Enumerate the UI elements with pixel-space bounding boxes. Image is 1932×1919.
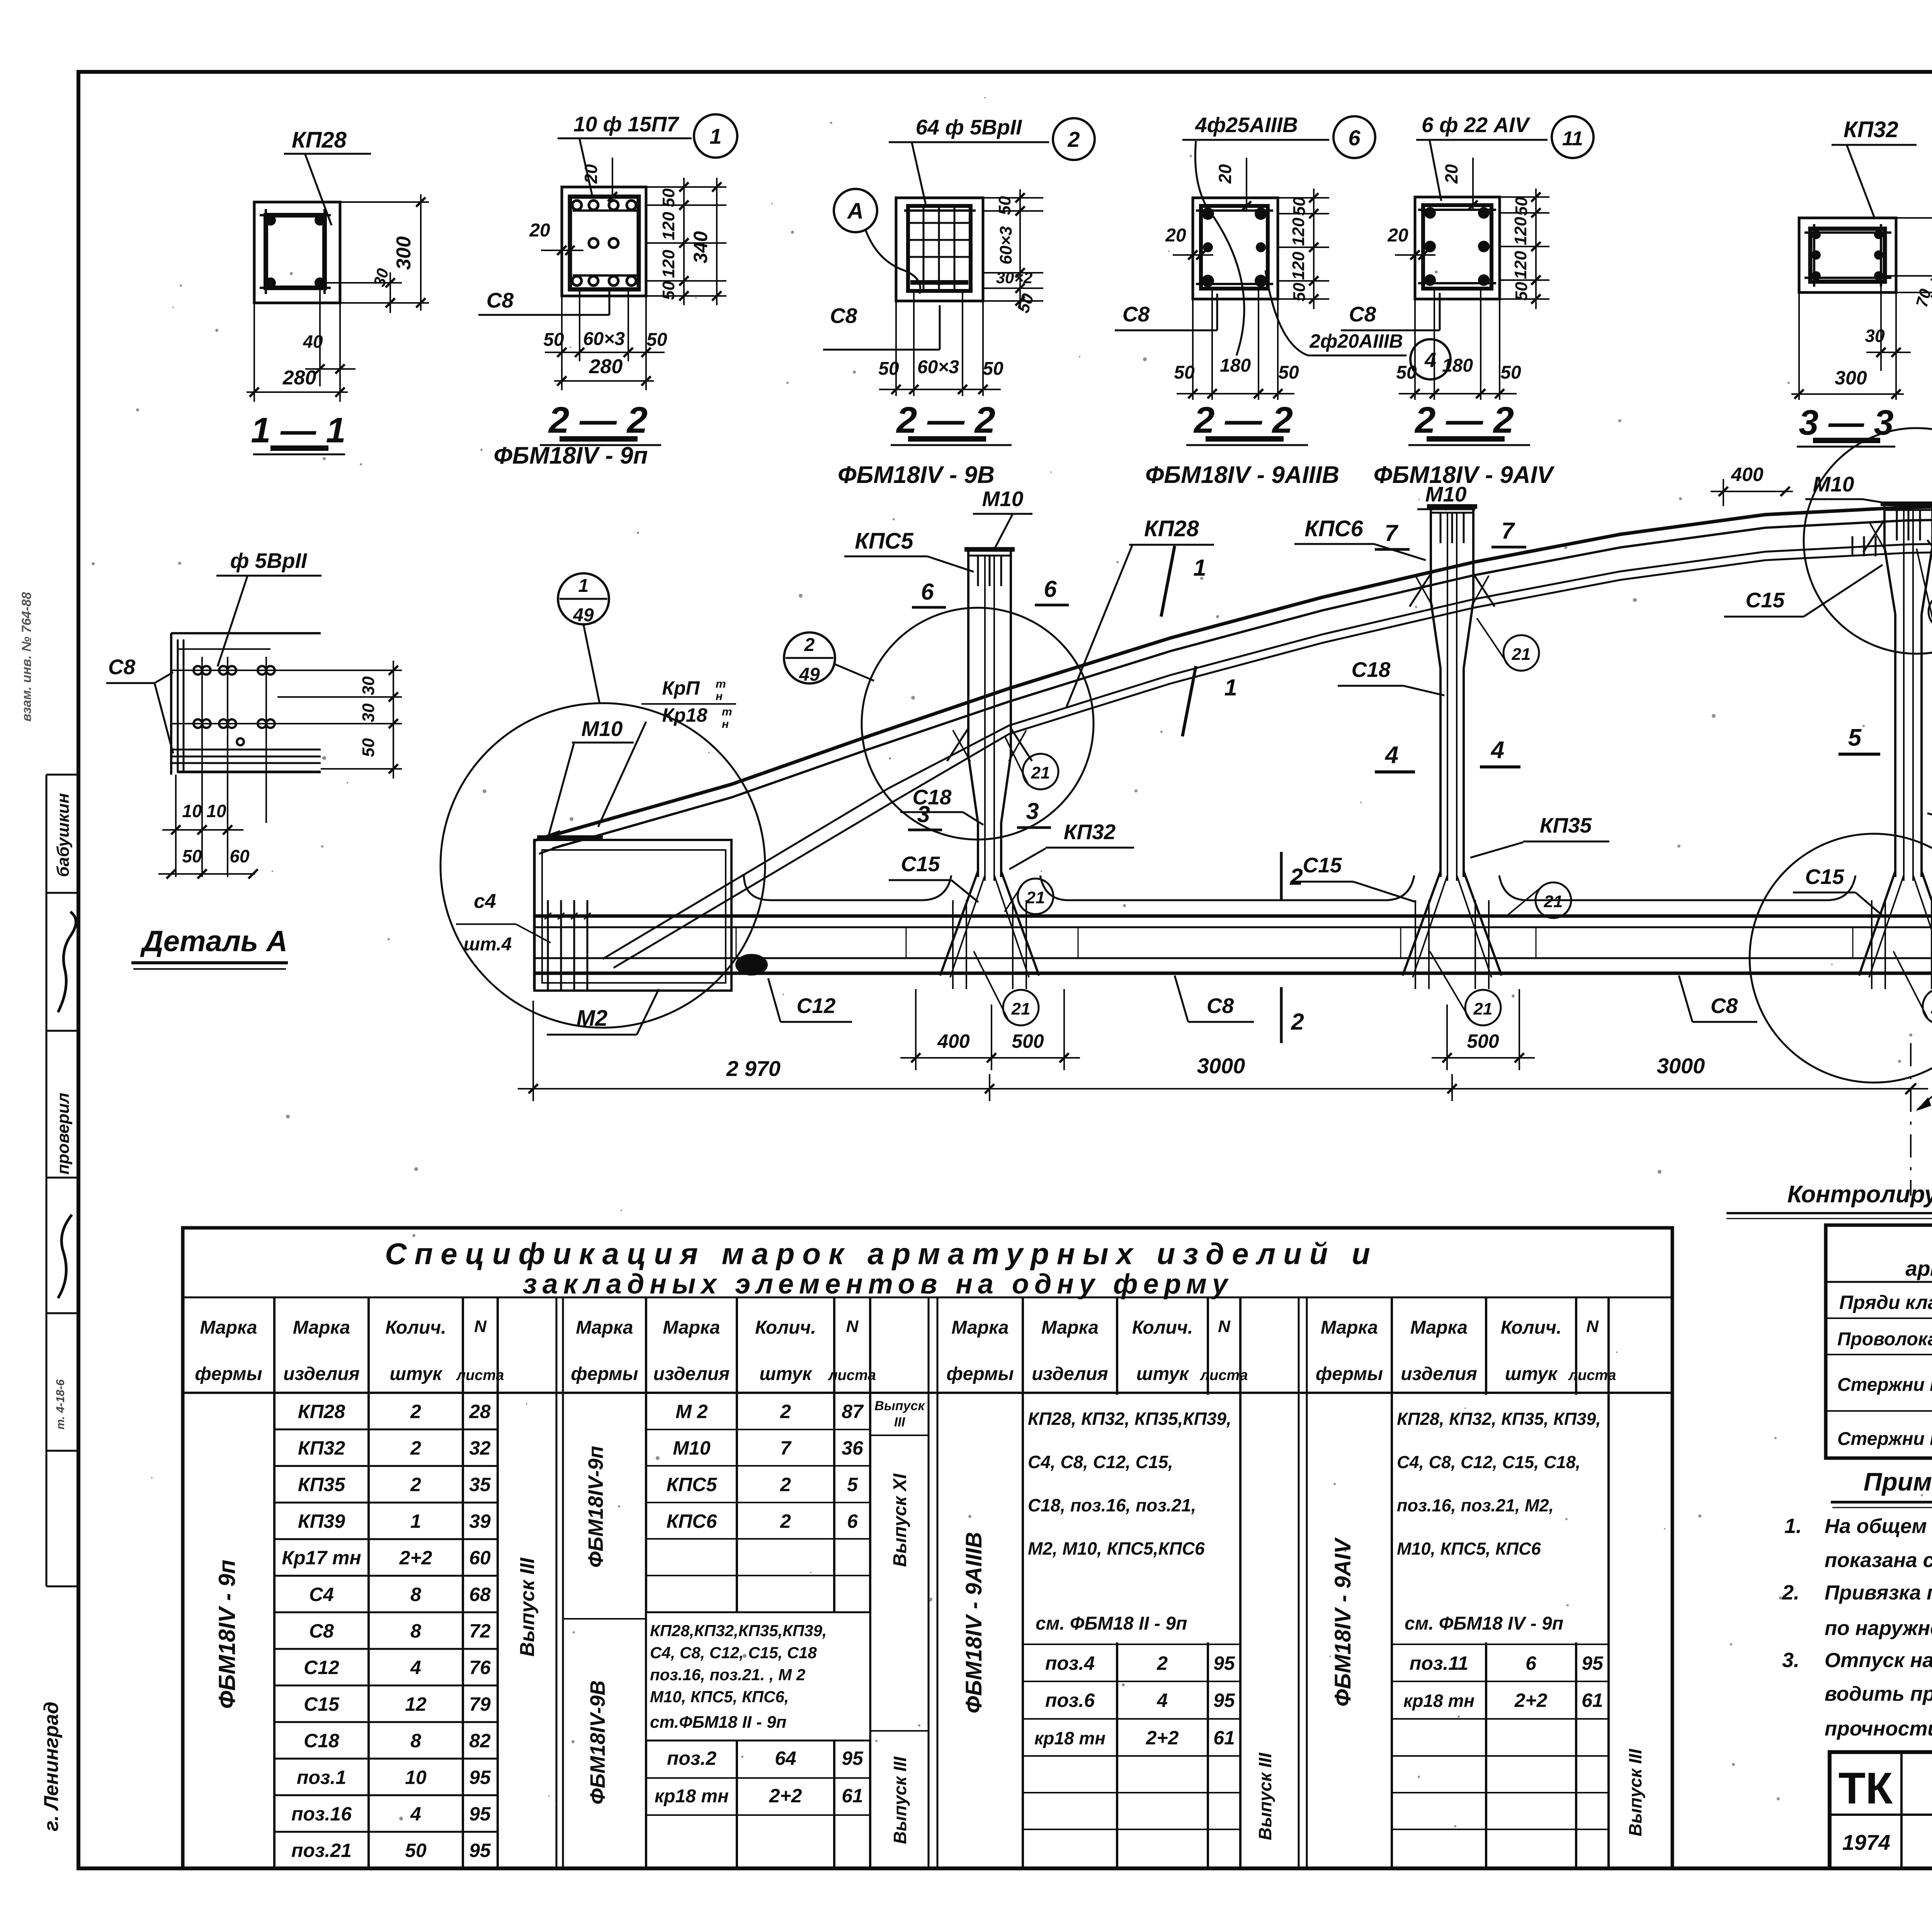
svg-text:1: 1 [709, 124, 721, 148]
svg-text:прочности не менее 280кг/см: прочности не менее 280кг/см². [1825, 1717, 1932, 1740]
svg-text:280: 280 [282, 367, 316, 389]
svg-text:кр18 тн: кр18 тн [1403, 1691, 1475, 1711]
svg-text:2 — 2: 2 — 2 [1414, 399, 1514, 441]
svg-text:64: 64 [775, 1747, 796, 1769]
svg-text:2: 2 [780, 1474, 791, 1496]
svg-text:Марка: Марка [951, 1317, 1009, 1338]
svg-text:500: 500 [1012, 1030, 1044, 1052]
svg-text:изделия: изделия [653, 1364, 730, 1384]
svg-text:Марка: Марка [1410, 1317, 1468, 1338]
svg-text:4: 4 [1156, 1690, 1168, 1711]
svg-text:68: 68 [469, 1584, 491, 1605]
svg-text:60: 60 [230, 846, 250, 866]
svg-text:7: 7 [780, 1437, 792, 1459]
svg-text:6: 6 [847, 1510, 858, 1532]
svg-text:Марка: Марка [663, 1317, 720, 1338]
svg-text:С15: С15 [1805, 865, 1845, 889]
svg-text:Выпуск III: Выпуск III [1255, 1752, 1275, 1840]
svg-text:72: 72 [469, 1620, 491, 1642]
svg-text:М10, КПС5, КПС6,: М10, КПС5, КПС6, [650, 1688, 789, 1706]
svg-text:С8: С8 [1122, 302, 1150, 326]
svg-text:КП32: КП32 [1064, 820, 1116, 844]
svg-text:Стержни класса А-IV: Стержни класса А-IV [1837, 1429, 1932, 1449]
svg-text:н: н [722, 718, 729, 731]
svg-text:21: 21 [1026, 888, 1045, 907]
svg-text:2+2: 2+2 [399, 1547, 432, 1569]
svg-text:т. 4-18-6: т. 4-18-6 [54, 1379, 67, 1429]
svg-text:2.: 2. [1782, 1581, 1799, 1604]
svg-text:300: 300 [393, 236, 415, 270]
svg-text:95: 95 [469, 1803, 491, 1825]
svg-text:400: 400 [1731, 464, 1764, 485]
svg-text:шт.4: шт.4 [464, 934, 512, 955]
svg-text:С8: С8 [1349, 302, 1376, 326]
svg-text:32: 32 [469, 1437, 491, 1459]
svg-text:50: 50 [659, 281, 678, 300]
svg-text:Марка: Марка [200, 1317, 257, 1338]
svg-text:Кр17 тн: Кр17 тн [282, 1547, 361, 1569]
svg-text:Выпуск III: Выпуск III [890, 1756, 910, 1844]
svg-text:120: 120 [1289, 218, 1308, 246]
svg-text:поз.11: поз.11 [1410, 1652, 1468, 1674]
svg-text:21: 21 [1031, 763, 1050, 782]
svg-text:82: 82 [469, 1730, 491, 1752]
svg-text:С4, С8, С12, С15, С18: С4, С8, С12, С15, С18 [650, 1644, 817, 1662]
svg-text:2: 2 [804, 635, 815, 655]
svg-text:28: 28 [469, 1401, 491, 1422]
svg-text:Деталь А: Деталь А [140, 925, 287, 958]
svg-text:50: 50 [1174, 362, 1195, 383]
svg-text:61: 61 [1582, 1690, 1603, 1711]
svg-text:6: 6 [1348, 126, 1361, 150]
svg-text:20: 20 [1387, 225, 1408, 246]
svg-text:см. ФБМ18 II - 9п: см. ФБМ18 II - 9п [1036, 1613, 1187, 1634]
svg-text:С8: С8 [108, 655, 136, 679]
svg-text:61: 61 [1213, 1727, 1235, 1749]
svg-text:КП32: КП32 [298, 1437, 345, 1459]
svg-text:7: 7 [1384, 520, 1398, 546]
svg-text:ФБМ18IV - 9п: ФБМ18IV - 9п [494, 442, 648, 469]
svg-text:по наружному размеру рабочей а: по наружному размеру рабочей арматуры ка… [1825, 1617, 1932, 1640]
svg-text:50: 50 [983, 359, 1003, 379]
svg-text:ТК: ТК [1838, 1764, 1893, 1813]
svg-text:С18: С18 [1352, 658, 1391, 682]
svg-text:40: 40 [303, 331, 323, 352]
svg-text:50: 50 [1500, 362, 1521, 383]
svg-text:С8: С8 [1711, 994, 1738, 1018]
svg-text:Стержни класса А-IIIВ: Стержни класса А-IIIВ [1837, 1375, 1932, 1395]
svg-text:N: N [1218, 1317, 1231, 1336]
svg-text:Выпуск XI: Выпуск XI [890, 1473, 910, 1567]
svg-text:49: 49 [573, 605, 594, 626]
svg-text:10: 10 [182, 801, 202, 821]
svg-text:8: 8 [410, 1730, 421, 1752]
svg-text:300: 300 [1835, 367, 1867, 389]
svg-text:1: 1 [1193, 555, 1206, 581]
svg-text:11: 11 [1562, 127, 1583, 150]
svg-text:С15: С15 [1746, 588, 1785, 612]
svg-text:2 — 2: 2 — 2 [548, 399, 648, 441]
svg-text:М 2: М 2 [675, 1401, 708, 1422]
svg-text:60: 60 [469, 1547, 491, 1569]
svg-text:С12: С12 [304, 1657, 339, 1678]
svg-text:т: т [716, 678, 726, 690]
svg-text:кр18 тн: кр18 тн [1034, 1728, 1105, 1748]
svg-text:2 — 2: 2 — 2 [896, 399, 995, 441]
svg-text:листа: листа [456, 1367, 504, 1384]
svg-text:20: 20 [1442, 164, 1461, 184]
svg-text:120: 120 [659, 250, 678, 278]
svg-text:см. ФБМ18 IV - 9п: см. ФБМ18 IV - 9п [1405, 1613, 1563, 1634]
svg-text:КПС6: КПС6 [1304, 516, 1363, 541]
svg-text:4: 4 [410, 1803, 421, 1825]
svg-text:КП35: КП35 [298, 1474, 346, 1496]
svg-text:10: 10 [206, 801, 226, 821]
svg-text:КП28, КП32, КП35, КП39,: КП28, КП32, КП35, КП39, [1397, 1409, 1601, 1429]
svg-text:2: 2 [1291, 1009, 1304, 1035]
svg-text:Марка: Марка [1321, 1317, 1378, 1338]
svg-text:С4: С4 [309, 1584, 334, 1605]
svg-text:95: 95 [469, 1766, 491, 1788]
svg-text:120: 120 [1511, 251, 1530, 279]
svg-text:Пряди класса П-7: Пряди класса П-7 [1839, 1292, 1932, 1313]
svg-text:3.: 3. [1782, 1649, 1799, 1672]
svg-text:С8: С8 [486, 288, 514, 312]
svg-text:армирования: армирования [1905, 1256, 1932, 1280]
svg-text:2+2: 2+2 [1146, 1727, 1179, 1749]
svg-text:Марка: Марка [576, 1317, 633, 1338]
svg-text:6: 6 [1526, 1652, 1537, 1674]
svg-text:180: 180 [1442, 355, 1473, 376]
svg-text:КП28: КП28 [298, 1401, 345, 1422]
svg-text:2: 2 [1156, 1652, 1168, 1674]
svg-text:т: т [722, 705, 732, 718]
svg-text:N: N [846, 1317, 859, 1336]
svg-text:КПС6: КПС6 [667, 1510, 718, 1532]
svg-text:н: н [716, 690, 723, 703]
svg-text:С15: С15 [901, 852, 940, 876]
svg-text:2: 2 [410, 1401, 421, 1422]
svg-text:30: 30 [1865, 326, 1885, 346]
svg-text:штук: штук [1136, 1364, 1190, 1384]
svg-text:Марка: Марка [1041, 1317, 1099, 1338]
svg-text:95: 95 [1582, 1652, 1604, 1674]
svg-text:поз.16, поз.21, М2,: поз.16, поз.21, М2, [1397, 1496, 1554, 1515]
svg-text:поз.1: поз.1 [297, 1766, 346, 1788]
svg-text:50: 50 [1512, 197, 1531, 216]
svg-text:поз.16: поз.16 [291, 1803, 352, 1825]
svg-text:штук: штук [1505, 1364, 1558, 1384]
svg-text:КПС5: КПС5 [667, 1474, 718, 1496]
svg-text:6: 6 [1044, 576, 1057, 602]
svg-text:2 — 2: 2 — 2 [1193, 399, 1293, 441]
svg-text:120: 120 [1289, 252, 1308, 280]
svg-text:фермы: фермы [571, 1364, 638, 1384]
svg-text:76: 76 [469, 1657, 491, 1678]
svg-text:С8: С8 [309, 1620, 334, 1642]
svg-text:4ф25АIIIВ: 4ф25АIIIВ [1195, 113, 1298, 137]
svg-text:60×3: 60×3 [583, 329, 625, 349]
svg-text:30×2: 30×2 [996, 269, 1033, 287]
svg-text:21: 21 [1011, 999, 1031, 1018]
svg-text:КП28, КП32, КП35,КП39,: КП28, КП32, КП35,КП39, [1028, 1409, 1231, 1429]
svg-text:180: 180 [1220, 355, 1251, 376]
svg-text:С4, С8, С12, С15, С18,: С4, С8, С12, С15, С18, [1397, 1452, 1580, 1472]
svg-text:поз.21: поз.21 [291, 1840, 352, 1861]
svg-text:95: 95 [1213, 1652, 1235, 1674]
svg-text:листа: листа [828, 1367, 876, 1384]
svg-text:20: 20 [1165, 225, 1186, 246]
svg-text:С12: С12 [797, 994, 836, 1018]
svg-text:N: N [474, 1317, 487, 1336]
svg-text:ФБМ18IV-9п: ФБМ18IV-9п [584, 1446, 607, 1567]
svg-text:Проволока класса Вр-II: Проволока класса Вр-II [1837, 1329, 1932, 1350]
svg-text:2: 2 [780, 1401, 791, 1422]
svg-text:КП28: КП28 [1144, 516, 1199, 541]
svg-text:3 — 3: 3 — 3 [1799, 403, 1893, 442]
svg-text:С4, С8, С12, С15,: С4, С8, С12, С15, [1028, 1452, 1173, 1472]
svg-text:Отпуск натяжения напрягаемой: Отпуск натяжения напрягаемой арматуры пр… [1825, 1649, 1932, 1672]
svg-text:2ф20АIIIВ: 2ф20АIIIВ [1309, 330, 1403, 352]
svg-text:штук: штук [389, 1364, 443, 1384]
svg-text:штук: штук [759, 1364, 813, 1384]
svg-text:М10: М10 [582, 717, 623, 741]
svg-text:Марка: Марка [293, 1317, 350, 1338]
svg-text:95: 95 [469, 1840, 491, 1861]
svg-text:А: А [847, 199, 864, 224]
svg-text:Привязка пространственных ка: Привязка пространственных каркасов в сеч… [1825, 1581, 1932, 1604]
svg-text:50: 50 [995, 196, 1014, 215]
svg-text:50: 50 [1512, 282, 1531, 301]
svg-text:50: 50 [543, 330, 564, 350]
svg-text:КП35: КП35 [1540, 813, 1592, 837]
svg-text:КП39: КП39 [298, 1510, 345, 1532]
svg-text:Колич.: Колич. [1132, 1317, 1193, 1338]
svg-text:87: 87 [842, 1401, 864, 1422]
svg-text:ФБМ18IV - 9В: ФБМ18IV - 9В [838, 462, 995, 488]
svg-text:50: 50 [1278, 362, 1299, 383]
svg-text:95: 95 [1213, 1690, 1235, 1711]
svg-text:г. Ленинград: г. Ленинград [40, 1701, 63, 1831]
svg-text:С8: С8 [830, 304, 857, 328]
svg-text:ФБМ18IV - 9п: ФБМ18IV - 9п [214, 1560, 240, 1709]
svg-text:340: 340 [690, 231, 711, 263]
svg-text:КП28,КП32,КП35,КП39,: КП28,КП32,КП35,КП39, [650, 1622, 827, 1640]
svg-text:64 ф 5ВрII: 64 ф 5ВрII [916, 115, 1023, 139]
svg-text:50: 50 [182, 846, 202, 866]
svg-text:поз.16, поз.21. , М 2: поз.16, поз.21. , М 2 [650, 1666, 805, 1684]
svg-text:ф 5ВрII: ф 5ВрII [230, 549, 308, 573]
svg-text:50: 50 [1290, 282, 1309, 301]
svg-text:С18: С18 [913, 785, 952, 809]
svg-text:6 ф 22 АIV: 6 ф 22 АIV [1422, 113, 1531, 137]
svg-text:КПС5: КПС5 [855, 529, 913, 554]
svg-text:3000: 3000 [1197, 1054, 1245, 1078]
svg-text:21: 21 [1473, 999, 1493, 1018]
svg-text:М2, М10, КПС5,КПС6: М2, М10, КПС5,КПС6 [1028, 1538, 1205, 1559]
svg-text:3000: 3000 [1657, 1054, 1705, 1078]
svg-text:Колич.: Колич. [1501, 1317, 1562, 1338]
svg-text:проверил: проверил [54, 1093, 73, 1175]
svg-text:2+2: 2+2 [1514, 1690, 1548, 1711]
svg-text:95: 95 [842, 1747, 864, 1769]
svg-text:Примечания: Примечания [1864, 1467, 1932, 1496]
svg-text:36: 36 [842, 1437, 864, 1459]
svg-text:21: 21 [1931, 998, 1932, 1017]
svg-text:2: 2 [1067, 127, 1080, 151]
svg-text:Выпуск III: Выпуск III [1625, 1749, 1645, 1836]
svg-text:280: 280 [589, 355, 623, 378]
svg-text:10: 10 [405, 1766, 427, 1788]
svg-text:10 ф 15П7: 10 ф 15П7 [573, 112, 679, 136]
svg-text:7: 7 [1501, 518, 1515, 544]
svg-text:КрП: КрП [662, 677, 700, 699]
svg-text:61: 61 [842, 1785, 863, 1807]
svg-text:водить при достижении бето: водить при достижении бетоном кубиковой [1825, 1683, 1932, 1705]
svg-text:ФБМ18IV - 9АIIIВ: ФБМ18IV - 9АIIIВ [1145, 462, 1339, 488]
svg-text:30: 30 [359, 703, 378, 722]
svg-text:ФБМ18IV-9В: ФБМ18IV-9В [586, 1680, 609, 1804]
svg-text:Спецификация марок арматурн: Спецификация марок арматурных изделий и [385, 1237, 1378, 1271]
svg-text:2 970: 2 970 [726, 1056, 781, 1081]
svg-text:4: 4 [1384, 742, 1398, 768]
svg-text:С8: С8 [1207, 994, 1234, 1018]
svg-text:1 — 1: 1 — 1 [251, 411, 345, 450]
svg-text:листа: листа [1568, 1367, 1616, 1384]
svg-text:бабушкин: бабушкин [54, 793, 73, 877]
svg-text:50: 50 [1396, 362, 1417, 383]
svg-text:ФБМ18IV - 9АIV: ФБМ18IV - 9АIV [1330, 1537, 1355, 1707]
svg-text:20: 20 [529, 220, 550, 241]
svg-text:КП32: КП32 [1844, 117, 1898, 142]
svg-text:60×3: 60×3 [997, 226, 1015, 264]
svg-text:Кр18: Кр18 [662, 704, 707, 726]
svg-text:ст.ФБМ18 II - 9п: ст.ФБМ18 II - 9п [650, 1713, 787, 1732]
svg-text:8: 8 [410, 1620, 421, 1642]
svg-text:фермы: фермы [946, 1364, 1014, 1384]
svg-text:взам. инв. № 764-88: взам. инв. № 764-88 [19, 592, 34, 721]
svg-text:С18: С18 [304, 1730, 339, 1752]
svg-text:С15: С15 [1303, 853, 1342, 877]
svg-text:20: 20 [1215, 164, 1235, 184]
svg-text:КП28: КП28 [292, 127, 347, 153]
svg-text:М10, КПС5, КПС6: М10, КПС5, КПС6 [1397, 1539, 1541, 1559]
svg-text:400: 400 [937, 1030, 970, 1052]
svg-text:2: 2 [1289, 864, 1303, 890]
svg-text:1974: 1974 [1842, 1830, 1891, 1854]
svg-text:ФБМ18IV - 9АIIIВ: ФБМ18IV - 9АIIIВ [961, 1532, 986, 1713]
svg-text:50: 50 [405, 1840, 427, 1861]
svg-text:21: 21 [1544, 892, 1563, 911]
svg-text:3: 3 [1026, 798, 1039, 824]
svg-text:Выпуск III: Выпуск III [516, 1557, 539, 1657]
svg-text:50: 50 [878, 359, 899, 379]
svg-text:На общем виде армирования в ни: На общем виде армирования в нижнем поясе… [1825, 1515, 1932, 1538]
svg-text:изделия: изделия [283, 1364, 360, 1384]
svg-text:фермы: фермы [1316, 1364, 1383, 1384]
svg-text:1: 1 [410, 1510, 421, 1532]
svg-text:50: 50 [1290, 197, 1309, 216]
svg-text:5: 5 [1848, 724, 1862, 751]
svg-text:39: 39 [469, 1510, 491, 1532]
svg-text:21: 21 [1512, 645, 1531, 664]
svg-text:35: 35 [469, 1474, 491, 1496]
svg-text:фермы: фермы [195, 1364, 262, 1384]
svg-text:50: 50 [659, 188, 678, 207]
svg-text:М10: М10 [982, 487, 1024, 511]
svg-text:Контролируемое усилие напряг: Контролируемое усилие напрягаемой армату… [1787, 1181, 1932, 1208]
svg-text:20: 20 [581, 164, 601, 184]
svg-text:500: 500 [1467, 1030, 1499, 1052]
svg-text:показана стержневая арматур: показана стержневая арматура. [1825, 1549, 1932, 1572]
svg-text:N: N [1586, 1317, 1599, 1336]
svg-text:с4: с4 [474, 890, 496, 913]
svg-text:Колич.: Колич. [755, 1317, 816, 1338]
svg-text:2: 2 [410, 1474, 421, 1496]
svg-text:4: 4 [410, 1657, 421, 1678]
svg-text:2: 2 [780, 1510, 791, 1532]
svg-text:50: 50 [359, 738, 378, 757]
svg-text:1: 1 [578, 576, 589, 596]
svg-text:60×3: 60×3 [917, 357, 959, 377]
svg-text:изделия: изделия [1032, 1364, 1108, 1384]
svg-text:6: 6 [921, 579, 934, 605]
svg-text:49: 49 [799, 665, 820, 685]
svg-text:листа: листа [1200, 1367, 1248, 1384]
svg-text:кр18 тн: кр18 тн [655, 1786, 729, 1807]
svg-text:поз.4: поз.4 [1045, 1652, 1095, 1674]
svg-text:изделия: изделия [1401, 1364, 1477, 1384]
svg-text:С15: С15 [304, 1693, 340, 1715]
svg-text:30: 30 [359, 676, 378, 695]
svg-text:5: 5 [847, 1474, 858, 1496]
svg-text:закладных элементов на одну: закладных элементов на одну ферму [523, 1269, 1233, 1300]
svg-text:Выпуск: Выпуск [874, 1399, 925, 1413]
svg-text:120: 120 [1511, 217, 1530, 245]
svg-text:1.: 1. [1784, 1514, 1802, 1538]
svg-text:50: 50 [646, 330, 667, 350]
svg-text:поз.6: поз.6 [1045, 1690, 1095, 1711]
svg-text:120: 120 [659, 212, 678, 240]
svg-text:1: 1 [1224, 675, 1237, 700]
svg-text:М10: М10 [1425, 482, 1467, 506]
svg-text:С18, поз.16, поз.21,: С18, поз.16, поз.21, [1028, 1495, 1196, 1515]
svg-text:Колич.: Колич. [385, 1317, 446, 1338]
svg-text:2+2: 2+2 [769, 1785, 802, 1807]
svg-text:III: III [894, 1415, 906, 1429]
svg-text:поз.2: поз.2 [667, 1747, 716, 1769]
svg-text:М10: М10 [673, 1437, 710, 1459]
svg-text:4: 4 [1490, 737, 1504, 763]
svg-text:79: 79 [469, 1693, 491, 1715]
svg-text:12: 12 [405, 1693, 427, 1715]
svg-text:8: 8 [410, 1584, 421, 1605]
svg-text:2: 2 [410, 1437, 421, 1459]
